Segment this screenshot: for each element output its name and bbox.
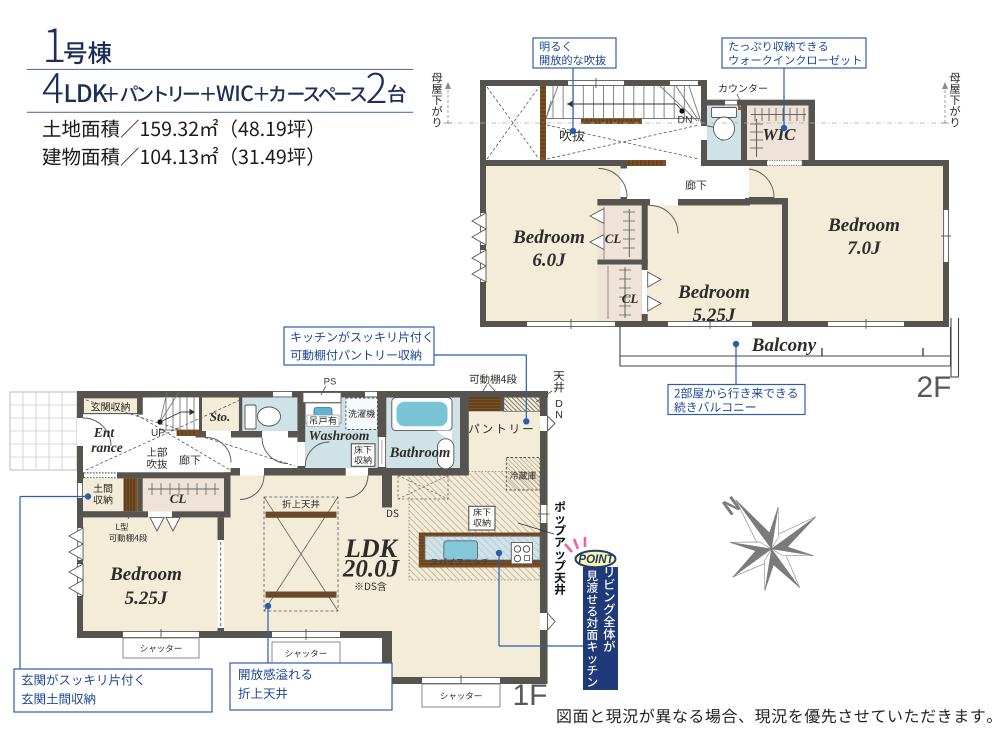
svg-text:UP: UP: [151, 428, 165, 439]
svg-text:5.25J: 5.25J: [693, 305, 736, 326]
svg-text:Bedroom: Bedroom: [109, 564, 182, 585]
svg-text:rance: rance: [91, 440, 123, 455]
svg-text:Balcony: Balcony: [751, 335, 817, 356]
svg-text:20.0J: 20.0J: [342, 556, 401, 583]
svg-text:7.0J: 7.0J: [847, 238, 881, 259]
svg-text:Bedroom: Bedroom: [827, 215, 900, 236]
svg-text:POINT: POINT: [578, 554, 614, 566]
svg-text:Ent: Ent: [93, 425, 116, 440]
svg-text:Bedroom: Bedroom: [512, 227, 585, 248]
svg-text:1F: 1F: [512, 679, 547, 712]
svg-text:6.0J: 6.0J: [532, 250, 566, 271]
svg-text:Bedroom: Bedroom: [677, 282, 750, 303]
svg-text:CL: CL: [622, 291, 639, 306]
svg-text:Sto.: Sto.: [210, 409, 231, 424]
svg-text:DN: DN: [677, 114, 692, 126]
svg-text:CL: CL: [605, 231, 622, 246]
svg-text:2F: 2F: [916, 371, 951, 404]
svg-text:PS: PS: [324, 377, 337, 388]
svg-text:CL: CL: [170, 491, 187, 506]
svg-text:WIC: WIC: [762, 125, 796, 144]
svg-text:5.25J: 5.25J: [125, 588, 168, 609]
svg-text:Bathroom: Bathroom: [389, 445, 450, 461]
svg-text:N: N: [555, 409, 563, 421]
svg-text:Washroom: Washroom: [309, 428, 370, 443]
